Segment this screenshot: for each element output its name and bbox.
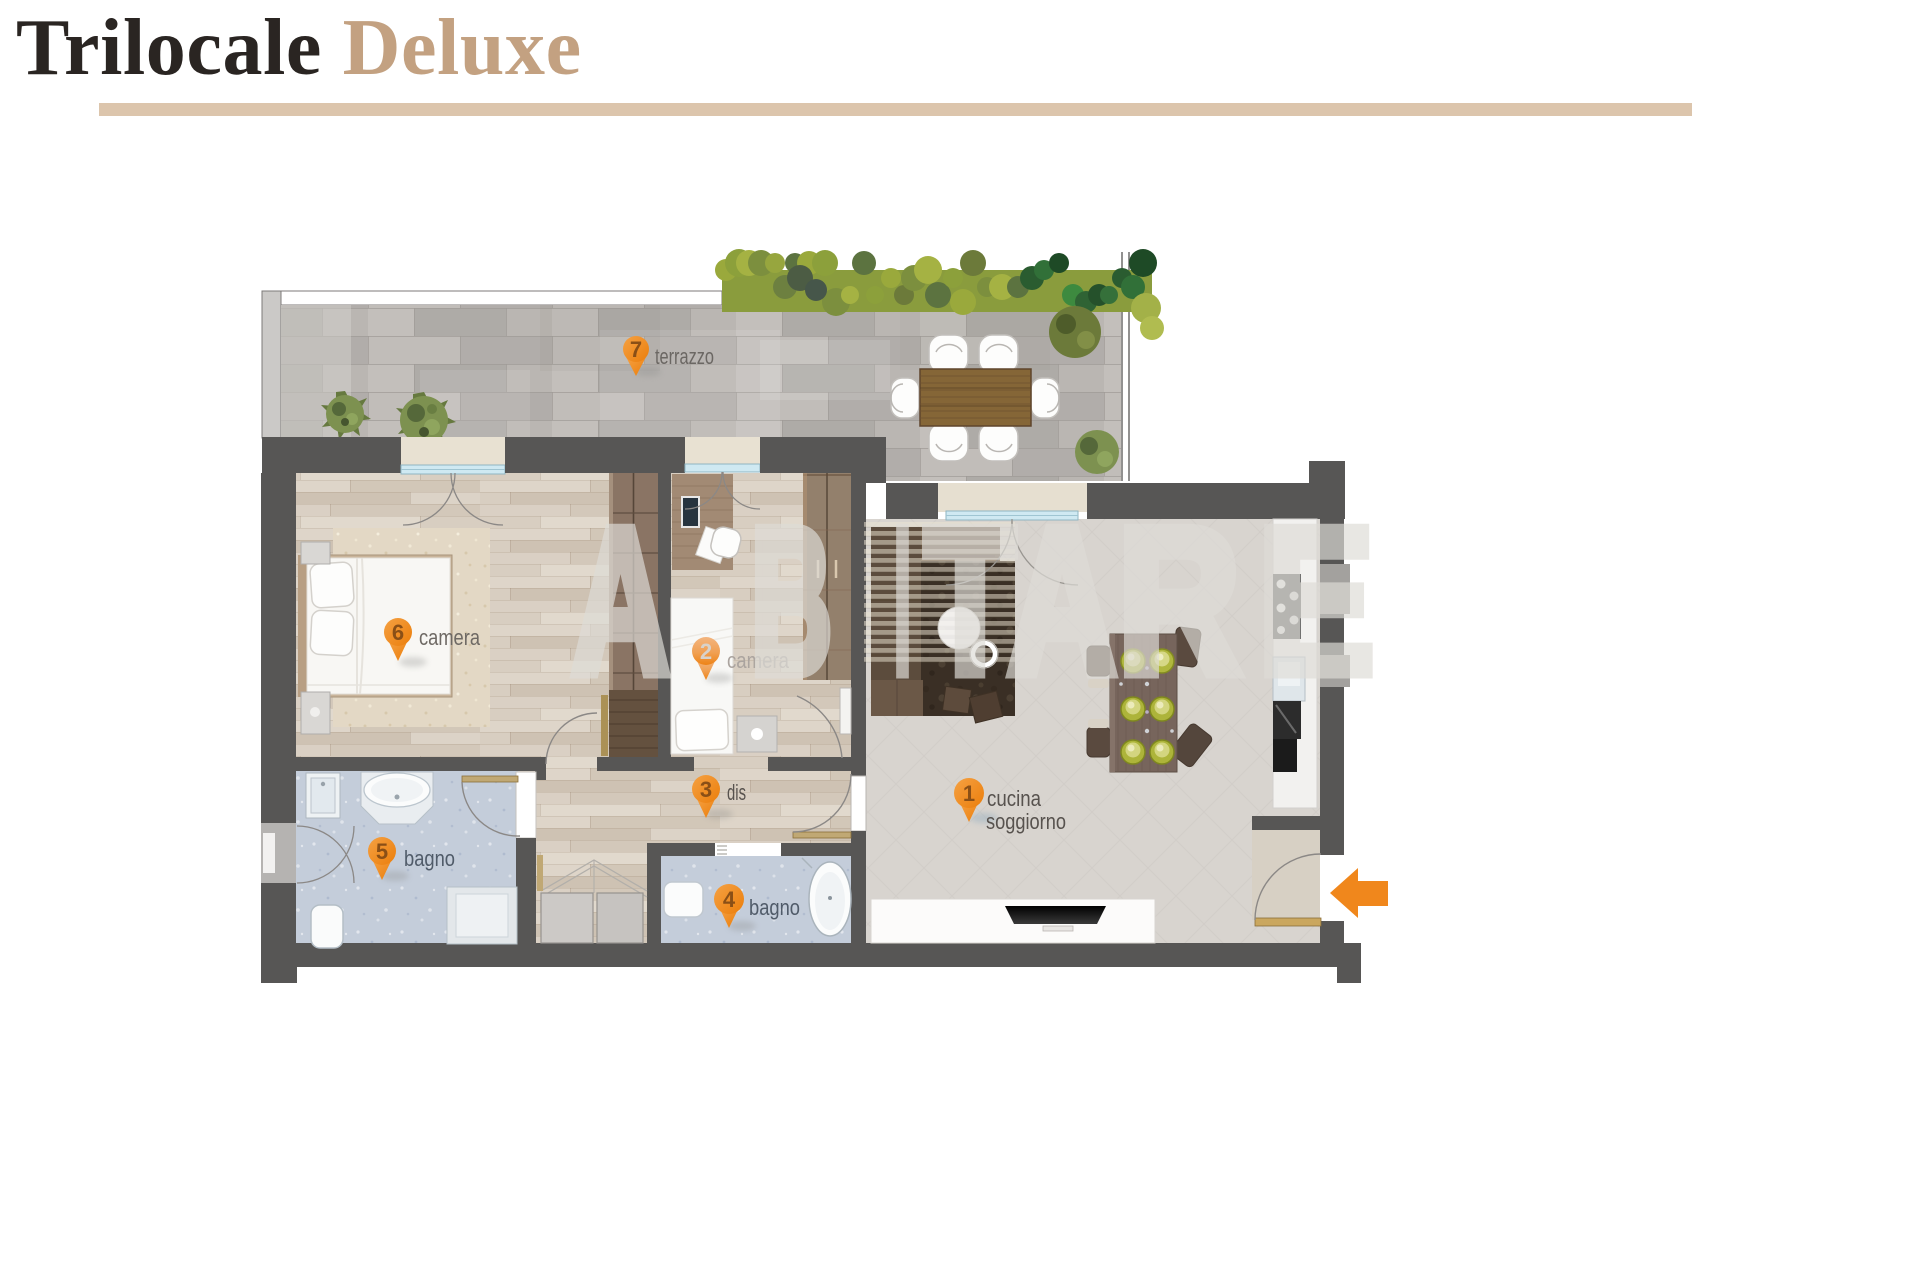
svg-text:7: 7	[630, 337, 642, 362]
svg-text:B: B	[751, 486, 832, 716]
svg-text:bagno: bagno	[404, 846, 455, 871]
svg-text:E: E	[1258, 486, 1374, 716]
svg-text:Trilocale Deluxe: Trilocale Deluxe	[16, 4, 582, 92]
svg-text:I: I	[894, 486, 911, 716]
svg-text:5: 5	[376, 839, 388, 864]
svg-text:A: A	[1008, 486, 1116, 716]
svg-text:terrazzo: terrazzo	[655, 344, 714, 369]
svg-text:6: 6	[392, 620, 404, 645]
svg-text:soggiorno: soggiorno	[986, 809, 1066, 834]
svg-text:3: 3	[700, 777, 712, 802]
svg-text:1: 1	[963, 781, 975, 806]
svg-text:dis: dis	[727, 780, 746, 805]
svg-text:camera: camera	[419, 625, 481, 650]
svg-text:R: R	[1118, 486, 1240, 716]
svg-text:bagno: bagno	[749, 895, 800, 920]
svg-text:T: T	[925, 486, 1015, 716]
svg-text:2: 2	[700, 639, 712, 664]
svg-text:4: 4	[723, 887, 736, 912]
svg-text:cucina: cucina	[987, 786, 1042, 811]
svg-text:A: A	[572, 486, 669, 716]
